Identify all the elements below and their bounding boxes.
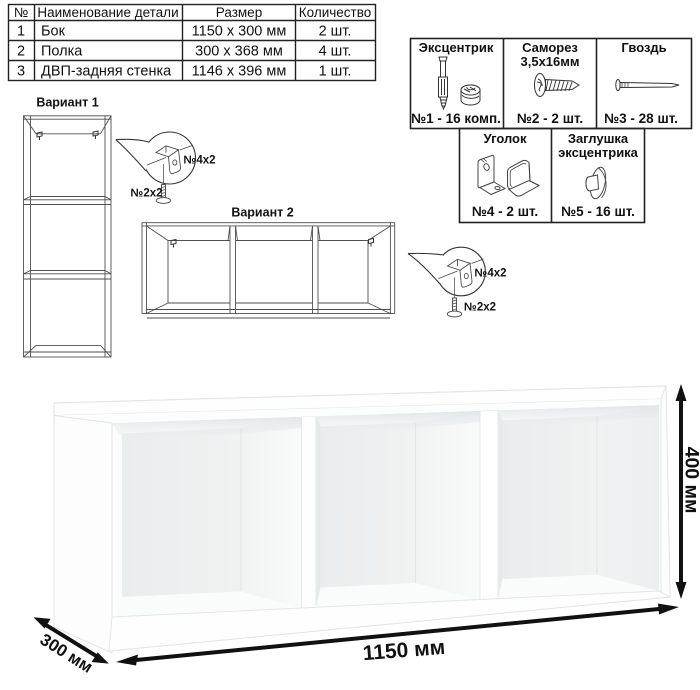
- svg-text:1: 1: [17, 24, 25, 40]
- svg-text:Саморез: Саморез: [522, 40, 578, 55]
- svg-text:4 шт.: 4 шт.: [319, 44, 352, 60]
- svg-text:№4 - 2 шт.: №4 - 2 шт.: [472, 204, 538, 219]
- svg-text:Наименование детали: Наименование детали: [37, 5, 178, 20]
- svg-text:2 шт.: 2 шт.: [319, 24, 352, 40]
- svg-text:Эксцентрик: Эксцентрик: [419, 40, 494, 55]
- svg-text:№3 - 28 шт.: №3 - 28 шт.: [604, 111, 678, 126]
- svg-text:1150 х 300 мм: 1150 х 300 мм: [192, 24, 287, 40]
- svg-text:Количество: Количество: [299, 5, 372, 20]
- svg-text:№4х2: №4х2: [184, 155, 216, 167]
- svg-text:№2х2: №2х2: [131, 188, 163, 200]
- svg-text:№1 - 16 комп.: №1 - 16 комп.: [411, 111, 501, 126]
- svg-text:Вариант 1: Вариант 1: [36, 96, 98, 110]
- svg-text:300 х 368 мм: 300 х 368 мм: [195, 44, 283, 60]
- svg-text:Гвоздь: Гвоздь: [621, 40, 666, 55]
- svg-text:3,5х16мм: 3,5х16мм: [521, 54, 580, 69]
- svg-text:№4х2: №4х2: [475, 268, 507, 280]
- svg-text:№: №: [14, 5, 28, 20]
- svg-text:2: 2: [17, 44, 25, 60]
- svg-text:Бок: Бок: [41, 24, 66, 40]
- svg-text:№2 - 2 шт.: №2 - 2 шт.: [517, 111, 583, 126]
- svg-text:1146 х 396 мм: 1146 х 396 мм: [192, 64, 287, 80]
- svg-text:3: 3: [17, 64, 25, 80]
- svg-text:эксцентрика: эксцентрика: [558, 145, 639, 160]
- svg-text:Полка: Полка: [41, 44, 83, 60]
- svg-text:Размер: Размер: [216, 5, 262, 20]
- svg-text:ДВП-задняя стенка: ДВП-задняя стенка: [41, 64, 172, 80]
- svg-text:Заглушка: Заглушка: [568, 131, 629, 146]
- svg-text:1 шт.: 1 шт.: [319, 64, 352, 80]
- svg-text:Уголок: Уголок: [484, 131, 527, 146]
- svg-text:№2х2: №2х2: [464, 302, 496, 314]
- svg-text:№5 - 16 шт.: №5 - 16 шт.: [561, 204, 635, 219]
- svg-text:400 мм: 400 мм: [681, 447, 700, 514]
- svg-text:Вариант 2: Вариант 2: [231, 206, 293, 220]
